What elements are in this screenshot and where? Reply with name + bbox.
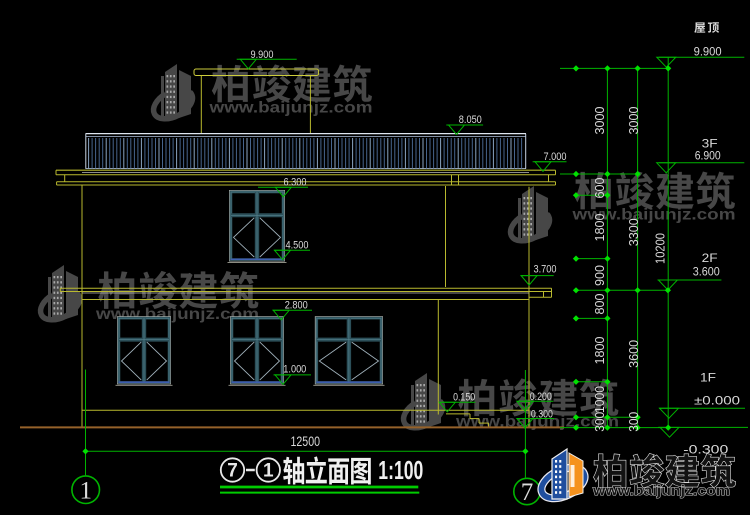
svg-text:600: 600 <box>592 178 607 199</box>
svg-text:3300: 3300 <box>626 218 641 246</box>
svg-text:1: 1 <box>79 478 92 505</box>
svg-text:3600: 3600 <box>626 340 641 368</box>
svg-text:±0.000: ±0.000 <box>694 395 740 407</box>
svg-text:1800: 1800 <box>592 337 607 365</box>
svg-text:800: 800 <box>592 294 607 315</box>
svg-text:1:100: 1:100 <box>378 457 423 485</box>
svg-text:www.baijunjz.com: www.baijunjz.com <box>592 483 730 498</box>
svg-text:10200: 10200 <box>653 233 668 264</box>
svg-text:3.600: 3.600 <box>693 267 720 279</box>
svg-text:12500: 12500 <box>291 433 321 449</box>
svg-text:www.baijunjz.com: www.baijunjz.com <box>208 99 372 116</box>
svg-text:3F: 3F <box>702 136 718 150</box>
svg-text:0.150: 0.150 <box>453 392 475 404</box>
svg-text:7: 7 <box>521 479 534 506</box>
svg-text:6.300: 6.300 <box>284 177 307 189</box>
svg-text:1F: 1F <box>700 370 716 384</box>
svg-text:300: 300 <box>592 412 607 432</box>
svg-text:1.000: 1.000 <box>283 363 306 375</box>
svg-text:3000: 3000 <box>626 107 641 135</box>
svg-text:7.000: 7.000 <box>544 151 567 163</box>
svg-text:3000: 3000 <box>592 107 607 135</box>
svg-text:1: 1 <box>263 461 274 482</box>
svg-text:9.900: 9.900 <box>694 46 722 58</box>
svg-text:8.050: 8.050 <box>459 114 482 126</box>
svg-text:300: 300 <box>626 412 641 432</box>
svg-text:6.900: 6.900 <box>695 150 721 162</box>
svg-text:2F: 2F <box>702 251 718 265</box>
svg-text:900: 900 <box>592 265 607 286</box>
svg-text:3.700: 3.700 <box>534 264 557 276</box>
svg-text:7: 7 <box>227 461 238 482</box>
svg-text:1800: 1800 <box>592 214 607 242</box>
svg-text:1000: 1000 <box>592 386 607 413</box>
svg-text:2.800: 2.800 <box>285 299 308 311</box>
